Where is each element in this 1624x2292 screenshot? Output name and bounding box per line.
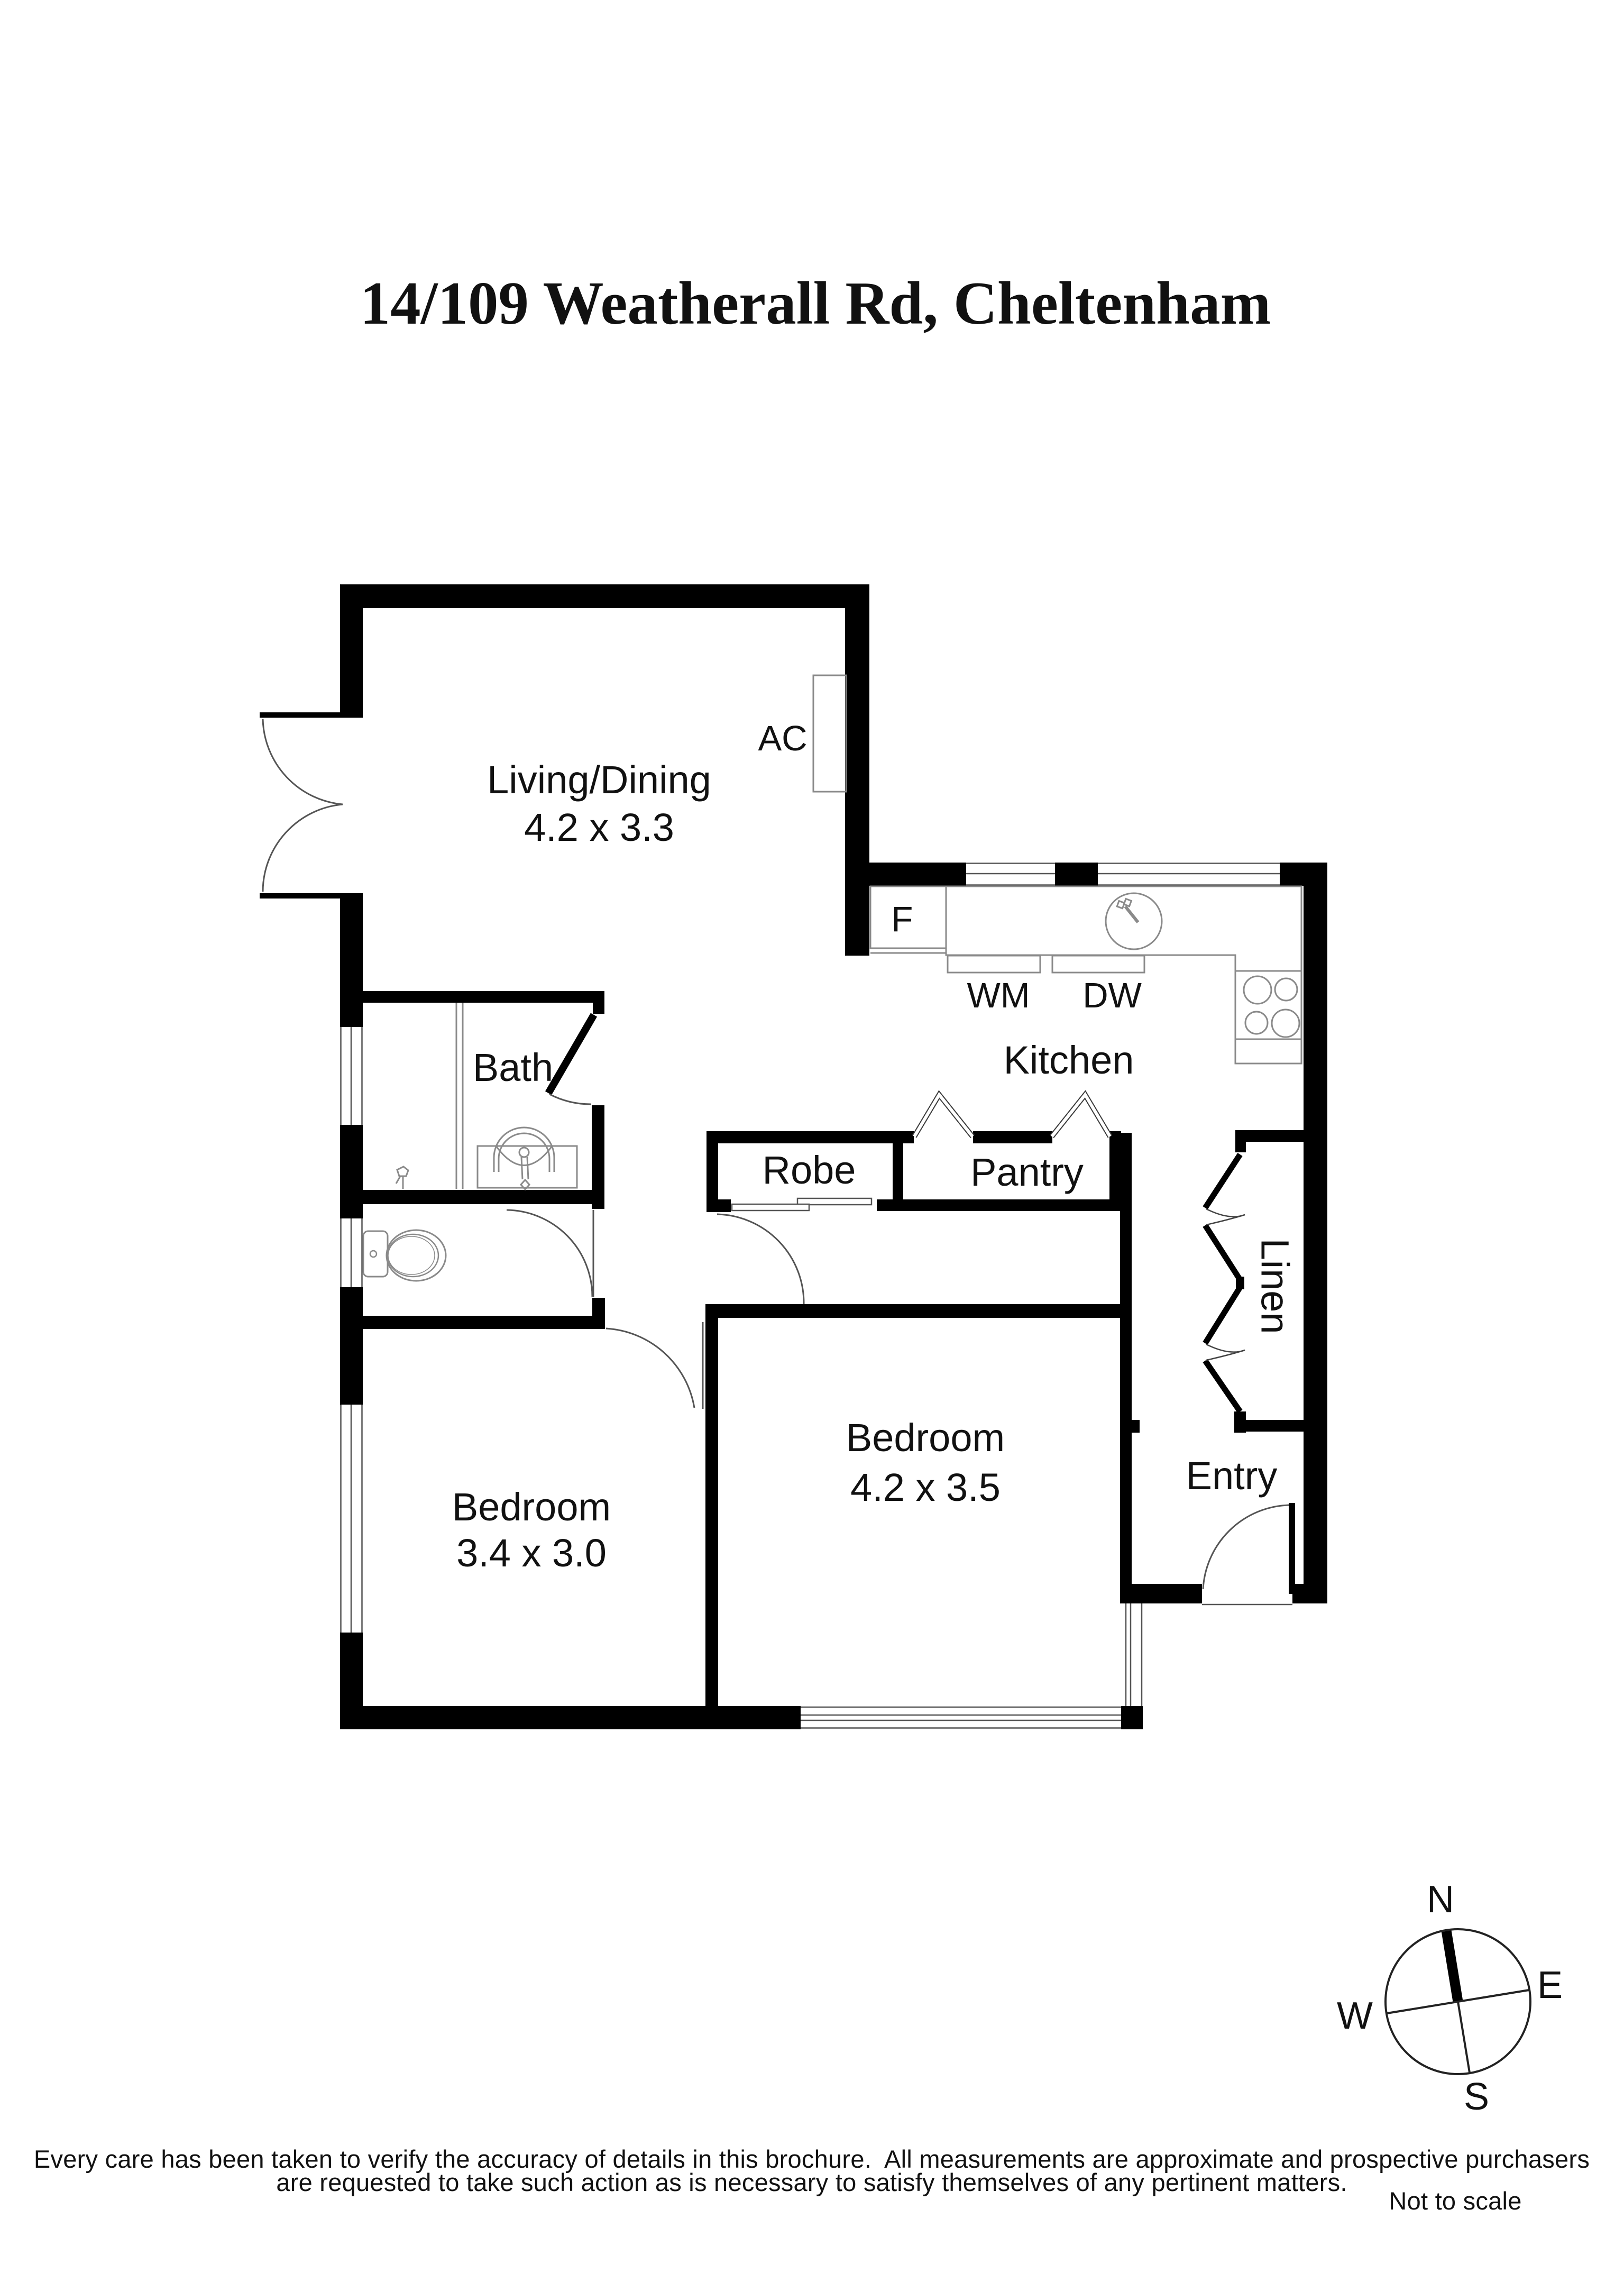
svg-text:N: N [1427, 1878, 1454, 1921]
svg-text:AC: AC [758, 719, 807, 758]
svg-text:Bath: Bath [473, 1046, 553, 1089]
svg-text:Bedroom: Bedroom [846, 1416, 1005, 1460]
svg-text:Pantry: Pantry [970, 1150, 1084, 1194]
svg-text:E: E [1537, 1964, 1563, 2006]
svg-text:S: S [1464, 2076, 1489, 2118]
svg-text:Not to scale: Not to scale [1389, 2187, 1521, 2215]
svg-text:Living/Dining: Living/Dining [487, 758, 711, 802]
svg-text:DW: DW [1082, 976, 1142, 1015]
svg-text:W: W [1337, 1995, 1373, 2037]
svg-text:Robe: Robe [763, 1148, 856, 1192]
svg-text:Kitchen: Kitchen [1004, 1038, 1134, 1082]
svg-text:Bedroom: Bedroom [452, 1485, 611, 1529]
svg-text:F: F [892, 900, 913, 939]
svg-text:Linen: Linen [1253, 1238, 1297, 1334]
svg-text:are requested to take such act: are requested to take such action as is … [276, 2168, 1347, 2196]
svg-text:Entry: Entry [1186, 1454, 1278, 1498]
svg-text:4.2 x 3.3: 4.2 x 3.3 [524, 805, 674, 849]
svg-text:WM: WM [967, 976, 1030, 1015]
svg-text:3.4 x 3.0: 3.4 x 3.0 [456, 1531, 607, 1575]
svg-text:14/109 Weatherall Rd, Cheltenh: 14/109 Weatherall Rd, Cheltenham [360, 270, 1271, 337]
svg-text:4.2 x 3.5: 4.2 x 3.5 [850, 1465, 1001, 1509]
